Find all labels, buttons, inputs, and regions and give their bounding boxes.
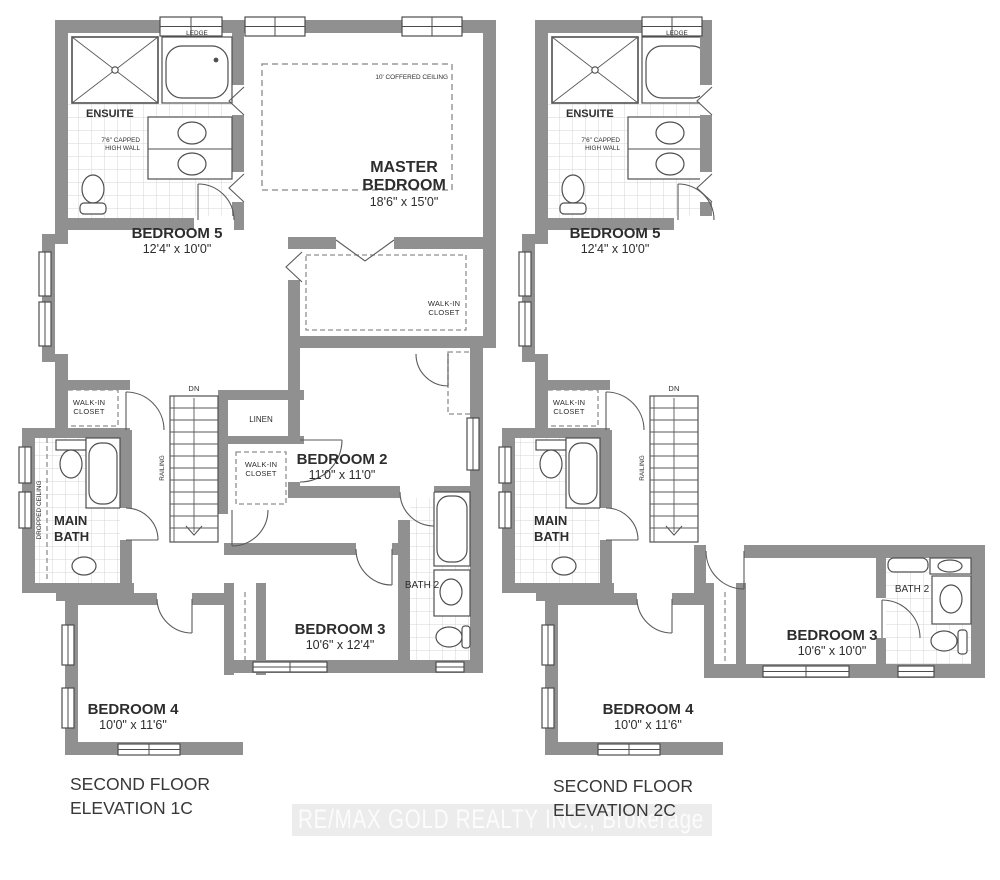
main-bath-tub bbox=[86, 438, 120, 508]
bedroom5-label: BEDROOM 5 bbox=[132, 225, 223, 242]
plan-geometry bbox=[232, 510, 268, 546]
closet2-label: CLOSET bbox=[245, 469, 276, 478]
bedroom4-dims: 10'0" x 11'6" bbox=[614, 718, 682, 732]
plan-2c-title: SECOND FLOOR bbox=[553, 776, 693, 796]
plan-geometry bbox=[80, 203, 106, 214]
plan-geometry bbox=[336, 239, 394, 249]
bedroom4-label: BEDROOM 4 bbox=[603, 701, 695, 718]
plan-geometry bbox=[694, 545, 706, 605]
door bbox=[637, 593, 672, 633]
window bbox=[402, 17, 462, 36]
plan-geometry bbox=[971, 545, 985, 678]
double-vanity-fixture bbox=[628, 117, 712, 179]
plan-geometry bbox=[82, 175, 104, 203]
plan-geometry bbox=[288, 482, 300, 498]
ledge-label: LEDGE bbox=[666, 30, 688, 37]
plan-geometry bbox=[394, 237, 483, 249]
plan-geometry bbox=[560, 203, 586, 214]
plan-geometry bbox=[637, 593, 672, 605]
master-closet-shelving bbox=[306, 255, 466, 330]
double-door bbox=[336, 239, 394, 261]
plan-geometry bbox=[288, 336, 300, 438]
plan-elevation-1c: LEDGE ENSUITE 7'6" CAPPED HIGH WALL 10' … bbox=[19, 17, 496, 755]
window bbox=[436, 662, 464, 672]
plan-geometry bbox=[112, 67, 118, 73]
window bbox=[39, 252, 51, 296]
main-bath-label: BATH bbox=[534, 529, 569, 544]
plan-geometry bbox=[700, 33, 712, 85]
plan-geometry bbox=[545, 593, 637, 605]
dn-label: DN bbox=[668, 384, 679, 393]
closet5-label: CLOSET bbox=[73, 407, 104, 416]
ensuite-label: ENSUITE bbox=[86, 108, 134, 120]
door bbox=[606, 392, 644, 430]
shower-fixture bbox=[72, 37, 158, 103]
plan-geometry bbox=[218, 390, 228, 514]
capped-wall-label: 7'6" CAPPED bbox=[581, 137, 620, 144]
bedroom5-label: BEDROOM 5 bbox=[570, 225, 661, 242]
plan-geometry bbox=[288, 280, 300, 336]
plan-geometry bbox=[22, 583, 134, 593]
plan-geometry bbox=[126, 392, 164, 430]
main-bath-sink bbox=[552, 557, 576, 575]
plan-geometry bbox=[89, 443, 117, 504]
bedroom4-dims: 10'0" x 11'6" bbox=[99, 718, 167, 732]
window bbox=[519, 302, 531, 346]
plan-1c-title: SECOND FLOOR bbox=[70, 774, 210, 794]
door bbox=[120, 508, 158, 540]
plan-geometry bbox=[656, 122, 684, 144]
double-vanity-fixture bbox=[148, 117, 232, 179]
shower-fixture bbox=[552, 37, 638, 103]
plan-geometry bbox=[437, 496, 467, 562]
plan-geometry bbox=[744, 545, 971, 558]
plan-geometry bbox=[120, 508, 132, 540]
window bbox=[598, 744, 660, 755]
plan-geometry bbox=[178, 122, 206, 144]
door-notch bbox=[286, 252, 302, 282]
plan-geometry bbox=[398, 520, 410, 666]
stairs-2c bbox=[650, 396, 698, 542]
window bbox=[39, 302, 51, 346]
plan-geometry bbox=[876, 558, 886, 598]
plan-geometry bbox=[178, 153, 206, 175]
closet2-label: WALK-IN bbox=[245, 460, 277, 469]
floor-plan-sheet: LEDGE ENSUITE 7'6" CAPPED HIGH WALL 10' … bbox=[0, 0, 1000, 880]
stairs-1c bbox=[170, 396, 218, 542]
plan-geometry bbox=[600, 540, 612, 585]
main-bath-tub bbox=[566, 438, 600, 508]
plan-geometry bbox=[218, 390, 304, 400]
door bbox=[416, 354, 448, 386]
plan-geometry bbox=[931, 631, 957, 651]
bathtub-fixture bbox=[162, 37, 232, 103]
master-closet-label: WALK-IN bbox=[428, 299, 460, 308]
plan-geometry bbox=[224, 543, 356, 555]
plan-geometry bbox=[392, 543, 410, 555]
plan-geometry bbox=[674, 216, 714, 232]
plan-geometry bbox=[55, 380, 130, 390]
window bbox=[499, 447, 511, 483]
plan-geometry bbox=[120, 540, 132, 585]
plan-geometry bbox=[232, 115, 244, 172]
window bbox=[245, 17, 305, 36]
plan-geometry bbox=[400, 486, 434, 498]
plan-geometry bbox=[502, 428, 610, 438]
bath2-label: BATH 2 bbox=[405, 580, 440, 591]
window bbox=[118, 744, 180, 755]
plan-geometry bbox=[436, 627, 462, 647]
window bbox=[62, 688, 74, 728]
door bbox=[356, 543, 392, 585]
plan-geometry bbox=[606, 392, 644, 430]
bedroom5-dims: 12'4" x 10'0" bbox=[581, 242, 650, 256]
floor-plan-drawing: LEDGE ENSUITE 7'6" CAPPED HIGH WALL 10' … bbox=[0, 0, 1000, 880]
bath2-counter bbox=[930, 558, 971, 574]
plan-geometry bbox=[288, 237, 336, 249]
window bbox=[542, 688, 554, 728]
bedroom4-label: BEDROOM 4 bbox=[88, 701, 180, 718]
plan-geometry bbox=[356, 543, 392, 555]
main-bath-sink bbox=[72, 557, 96, 575]
plan-geometry bbox=[416, 354, 448, 386]
bedroom3-dims: 10'6" x 10'0" bbox=[798, 644, 867, 658]
bedroom3-label: BEDROOM 3 bbox=[295, 621, 386, 638]
window bbox=[499, 492, 511, 528]
window bbox=[519, 252, 531, 296]
master-closet-label: CLOSET bbox=[428, 308, 459, 317]
plan-geometry bbox=[592, 67, 598, 73]
plan-geometry bbox=[700, 115, 712, 172]
door bbox=[232, 510, 268, 546]
plan-geometry bbox=[440, 579, 462, 605]
plan-geometry bbox=[22, 428, 130, 438]
bath2-tub-partial bbox=[888, 558, 928, 572]
plan-geometry bbox=[545, 593, 558, 755]
plan-geometry bbox=[288, 336, 483, 348]
bedroom2-label: BEDROOM 2 bbox=[297, 451, 388, 468]
plan-geometry bbox=[120, 430, 132, 508]
toilet-fixture bbox=[80, 175, 106, 214]
window bbox=[19, 447, 31, 483]
plan-geometry bbox=[286, 252, 302, 282]
plan-geometry bbox=[462, 626, 470, 648]
capped-wall-label: HIGH WALL bbox=[105, 145, 140, 152]
bedroom2-dims: 11'0" x 11'0" bbox=[309, 468, 376, 482]
plan-geometry bbox=[60, 450, 82, 478]
plan-elevation-2c: LEDGE ENSUITE 7'6" CAPPED HIGH WALL BEDR… bbox=[499, 17, 985, 755]
door bbox=[600, 508, 638, 540]
toilet-fixture bbox=[560, 175, 586, 214]
plan-geometry bbox=[569, 443, 597, 504]
window bbox=[253, 662, 327, 672]
bath2-vanity bbox=[434, 570, 470, 616]
plan-geometry bbox=[502, 583, 614, 593]
master-bedroom-dims: 18'6" x 15'0" bbox=[370, 195, 439, 209]
plan-2c-title: ELEVATION 2C bbox=[553, 800, 676, 820]
railing-label: RAILING bbox=[639, 455, 646, 481]
capped-wall-label: 7'6" CAPPED bbox=[101, 137, 140, 144]
bath2-label: BATH 2 bbox=[895, 584, 930, 595]
main-bath-label: BATH bbox=[54, 529, 89, 544]
door bbox=[157, 593, 192, 633]
plan-geometry bbox=[535, 20, 548, 242]
railing-label: RAILING bbox=[159, 455, 166, 481]
linen-label: LINEN bbox=[249, 415, 273, 424]
plan-geometry bbox=[600, 380, 610, 390]
plan-geometry bbox=[940, 585, 962, 613]
plan-geometry bbox=[536, 440, 566, 450]
plan-geometry bbox=[120, 380, 130, 390]
window bbox=[763, 666, 849, 677]
plan-geometry bbox=[288, 486, 400, 498]
plan-geometry bbox=[214, 58, 219, 63]
main-bath-label: MAIN bbox=[534, 513, 567, 528]
window bbox=[19, 492, 31, 528]
bath2-toilet bbox=[436, 626, 470, 648]
coffered-ceiling-label: 10' COFFERED CEILING bbox=[375, 74, 448, 81]
window bbox=[467, 418, 479, 470]
plan-geometry bbox=[600, 430, 612, 508]
capped-wall-label: HIGH WALL bbox=[585, 145, 620, 152]
plan-1c-title: ELEVATION 1C bbox=[70, 798, 193, 818]
plan-geometry bbox=[166, 46, 228, 98]
door bbox=[126, 392, 164, 430]
dropped-ceiling-label: DROPPED CEILING bbox=[36, 480, 43, 539]
plan-geometry bbox=[656, 153, 684, 175]
plan-geometry bbox=[562, 175, 584, 203]
ledge-label: LEDGE bbox=[186, 30, 208, 37]
plan-geometry bbox=[535, 380, 610, 390]
plan-geometry bbox=[540, 450, 562, 478]
bath2-tub bbox=[434, 492, 470, 566]
window bbox=[898, 666, 934, 677]
plan-geometry bbox=[65, 593, 78, 755]
dn-label: DN bbox=[188, 384, 199, 393]
plan-geometry bbox=[56, 440, 86, 450]
closet5-label: WALK-IN bbox=[73, 398, 105, 407]
bedroom3-label: BEDROOM 3 bbox=[787, 627, 878, 644]
ensuite-label: ENSUITE bbox=[566, 108, 614, 120]
plan-geometry bbox=[483, 20, 496, 336]
closet5-label: CLOSET bbox=[553, 407, 584, 416]
plan-geometry bbox=[157, 593, 192, 605]
bath2-vanity bbox=[932, 576, 971, 624]
window bbox=[542, 625, 554, 665]
plan-geometry bbox=[876, 638, 886, 668]
bedroom5-dims: 12'4" x 10'0" bbox=[143, 242, 212, 256]
master-bedroom-label: BEDROOM bbox=[362, 177, 446, 194]
main-bath-label: MAIN bbox=[54, 513, 87, 528]
plan-geometry bbox=[55, 20, 68, 242]
plan-geometry bbox=[600, 508, 612, 540]
plan-geometry bbox=[736, 583, 746, 675]
closet5-label: WALK-IN bbox=[553, 398, 585, 407]
plan-geometry bbox=[938, 560, 962, 572]
bedroom3-dims: 10'6" x 12'4" bbox=[306, 638, 375, 652]
plan-geometry bbox=[958, 630, 967, 654]
plan-geometry bbox=[646, 46, 708, 98]
plan-geometry bbox=[232, 33, 244, 85]
plan-geometry bbox=[65, 593, 157, 605]
window bbox=[62, 625, 74, 665]
plan-geometry bbox=[228, 436, 304, 444]
master-bedroom-label: MASTER bbox=[370, 159, 438, 176]
